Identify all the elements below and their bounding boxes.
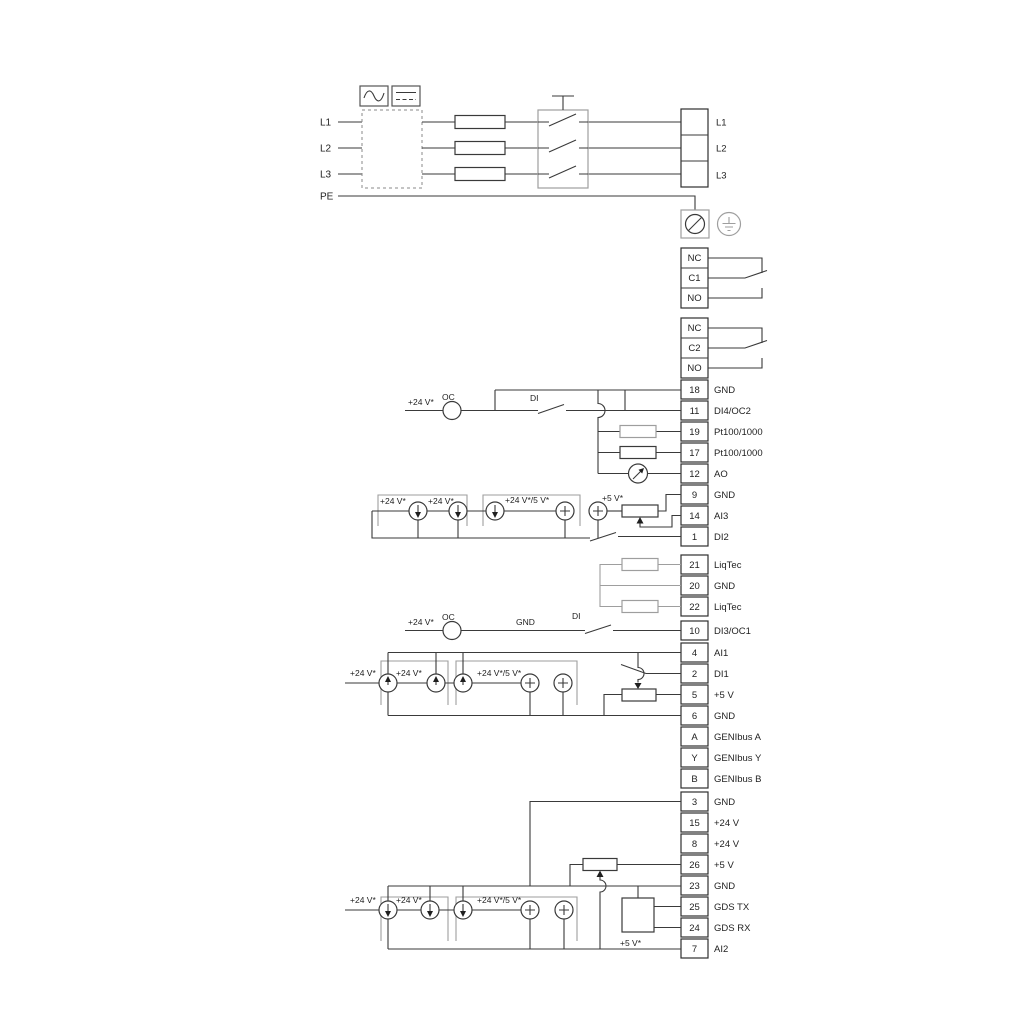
relay2-no: NO <box>687 363 701 374</box>
current-source-icon <box>409 502 427 520</box>
analog-output-meter-icon <box>629 464 648 483</box>
v24-5v-label: +24 V*/5 V* <box>477 668 522 678</box>
terminal-label: L2 <box>716 144 727 155</box>
terminal-number: 17 <box>689 448 700 459</box>
terminal-label: L1 <box>716 118 727 129</box>
relay2-nc: NC <box>688 323 702 334</box>
relay1-no: NO <box>687 293 701 304</box>
fuse-icon <box>455 168 505 181</box>
terminal-number: 5 <box>692 690 697 701</box>
rcd-dashed-box <box>362 110 422 188</box>
v24-5v-label: +24 V*/5 V* <box>505 495 550 505</box>
terminal-number: 24 <box>689 923 700 934</box>
terminal-number: 3 <box>692 797 697 808</box>
v5-label: +5 V* <box>602 493 624 503</box>
potentiometer-icon <box>622 505 658 517</box>
wiring-diagram-canvas: L1 L2 L3 PE <box>0 0 1024 1024</box>
current-source-icon <box>379 674 397 692</box>
relay1-section: NC C1 NO <box>681 248 767 308</box>
terminal-number: 6 <box>692 711 697 722</box>
terminal-number: 14 <box>689 511 700 522</box>
terminal-label: +5 V <box>714 690 734 701</box>
terminal-label: +24 V <box>714 839 740 850</box>
terminal-label: GND <box>714 385 735 396</box>
earth-icon <box>718 213 741 236</box>
main-switch-icon <box>538 96 588 188</box>
terminal-label: AI2 <box>714 944 728 955</box>
fuse-icon <box>455 142 505 155</box>
terminal-number: 2 <box>692 669 697 680</box>
terminal-number: 10 <box>689 626 700 637</box>
mains-label-l1: L1 <box>320 118 332 129</box>
terminal-number: 11 <box>690 406 700 417</box>
mains-label-l3: L3 <box>320 170 332 181</box>
terminal-number: 22 <box>689 602 700 613</box>
terminal-number: 25 <box>689 902 700 913</box>
gnd-label: GND <box>516 617 535 627</box>
voltage-source-icon <box>521 674 539 692</box>
terminal-label: Pt100/1000 <box>714 448 763 459</box>
terminal-number: 19 <box>689 427 700 438</box>
terminal-label: +24 V <box>714 818 740 829</box>
voltage-source-icon <box>521 901 539 919</box>
potentiometer-icon <box>583 859 617 871</box>
terminal-number: 7 <box>692 944 697 955</box>
liqtec-terminals: 21LiqTec 20GND 22LiqTec <box>600 555 742 616</box>
terminal-label: DI1 <box>714 669 729 680</box>
terminal-number: 1 <box>692 532 697 543</box>
terminal-number: 15 <box>689 818 700 829</box>
terminal-label: L3 <box>716 171 727 182</box>
terminal-label: DI4/OC2 <box>714 406 751 417</box>
oc-pullup-icon <box>443 622 461 640</box>
v24-label: +24 V* <box>350 895 376 905</box>
terminal-number: B <box>691 774 697 785</box>
terminal-label: GND <box>714 711 735 722</box>
current-source-icon <box>449 502 467 520</box>
gds-sensor-icon <box>622 898 654 932</box>
wiring-diagram: L1 L2 L3 PE <box>0 0 1024 1024</box>
terminal-label: GDS RX <box>714 923 751 934</box>
terminal-number: 8 <box>692 839 697 850</box>
wiper-arrow-icon <box>637 517 644 524</box>
terminal-number: 23 <box>689 881 700 892</box>
mains-terminal-block: L1 L2 L3 <box>681 109 727 187</box>
terminal-number: 20 <box>689 581 700 592</box>
voltage-source-icon <box>554 674 572 692</box>
dc-line-icon <box>392 86 420 106</box>
voltage-source-icon <box>556 502 574 520</box>
terminal-number: 12 <box>689 469 700 480</box>
wiper-arrow-icon <box>597 871 604 878</box>
io-group2-circuit: +24 V* +24 V* +24 V*/5 V* <box>345 653 681 716</box>
v24-label: +24 V* <box>380 496 406 506</box>
terminal-number: Y <box>691 753 698 764</box>
io-group1-terminals: 18GND 11DI4/OC2 19Pt100/1000 17Pt100/100… <box>681 380 763 546</box>
v24-label: +24 V* <box>408 617 434 627</box>
liqtec-resistor-icon <box>622 601 658 613</box>
current-source-icon <box>421 901 439 919</box>
relay1-contact-icon <box>708 258 767 298</box>
current-source-icon <box>379 901 397 919</box>
terminal-label: GENIbus A <box>714 732 762 743</box>
current-source-icon <box>454 674 472 692</box>
terminal-number: 26 <box>689 860 700 871</box>
terminal-label: LiqTec <box>714 560 742 571</box>
terminal-number: 18 <box>689 385 700 396</box>
liqtec-sensor-circuit <box>600 559 681 613</box>
terminal-label: GND <box>714 581 735 592</box>
v24-label: +24 V* <box>350 668 376 678</box>
terminal-label: AO <box>714 469 728 480</box>
mains-label-l2: L2 <box>320 144 332 155</box>
terminal-label: +5 V <box>714 860 734 871</box>
voltage-source-icon <box>555 901 573 919</box>
potentiometer-icon <box>622 689 656 701</box>
terminal-label: DI3/OC1 <box>714 626 751 637</box>
oc-label: OC <box>442 612 455 622</box>
current-source-icon <box>427 674 445 692</box>
terminal-label: GND <box>714 881 735 892</box>
current-source-icon <box>454 901 472 919</box>
io-group3-terminals: 3GND 15+24 V 8+24 V 26+5 V 23GND 25GDS T… <box>681 792 751 958</box>
voltage-source-icon <box>589 502 607 520</box>
fuse-icon <box>455 116 505 129</box>
terminal-label: GENIbus Y <box>714 753 762 764</box>
pt100-resistor-icon <box>620 426 656 438</box>
relay2-section: NC C2 NO <box>681 318 767 378</box>
relay1-nc: NC <box>688 253 702 264</box>
terminal-label: Pt100/1000 <box>714 427 763 438</box>
io-group1-circuit: +24 V* OC DI +24 V* +24 V* +24 V*/5 V* +… <box>372 390 681 541</box>
terminal-label: GENIbus B <box>714 774 762 785</box>
oc-label: OC <box>442 392 455 402</box>
oc-pullup-icon <box>443 402 461 420</box>
io-group3-circuit: +24 V* +24 V* +24 V*/5 V* +5 V* <box>345 802 681 950</box>
liqtec-resistor-icon <box>622 559 658 571</box>
terminal-label: GDS TX <box>714 902 750 913</box>
relay2-common: C2 <box>688 343 700 354</box>
pe-terminal-icon <box>681 210 709 238</box>
relay2-contact-icon <box>708 328 767 368</box>
v24-label: +24 V* <box>408 397 434 407</box>
terminal-label: AI1 <box>714 648 728 659</box>
terminal-label: AI3 <box>714 511 728 522</box>
v24-label: +24 V* <box>396 895 422 905</box>
relay1-common: C1 <box>688 273 700 284</box>
terminal-number: 4 <box>692 648 697 659</box>
wiper-arrow-icon <box>635 683 642 689</box>
terminal-label: LiqTec <box>714 602 742 613</box>
v24-5v-label: +24 V*/5 V* <box>477 895 522 905</box>
io-group2-terminals: 4AI1 2DI1 5+5 V 6GND AGENIbus A YGENIbus… <box>681 643 762 788</box>
ac-wave-icon <box>360 86 388 106</box>
mains-input-section: L1 L2 L3 PE <box>320 86 741 238</box>
di-label: DI <box>572 611 581 621</box>
terminal-label: DI2 <box>714 532 729 543</box>
pt100-resistor-icon <box>620 447 656 459</box>
v24-label: +24 V* <box>396 668 422 678</box>
v24-label: +24 V* <box>428 496 454 506</box>
terminal-number: A <box>691 732 698 743</box>
current-source-icon <box>486 502 504 520</box>
terminal-label: GND <box>714 797 735 808</box>
terminal-label: GND <box>714 490 735 501</box>
di-label: DI <box>530 393 539 403</box>
mains-label-pe: PE <box>320 192 334 203</box>
terminal-number: 9 <box>692 490 697 501</box>
terminal-number: 21 <box>689 560 700 571</box>
v5-label: +5 V* <box>620 938 642 948</box>
